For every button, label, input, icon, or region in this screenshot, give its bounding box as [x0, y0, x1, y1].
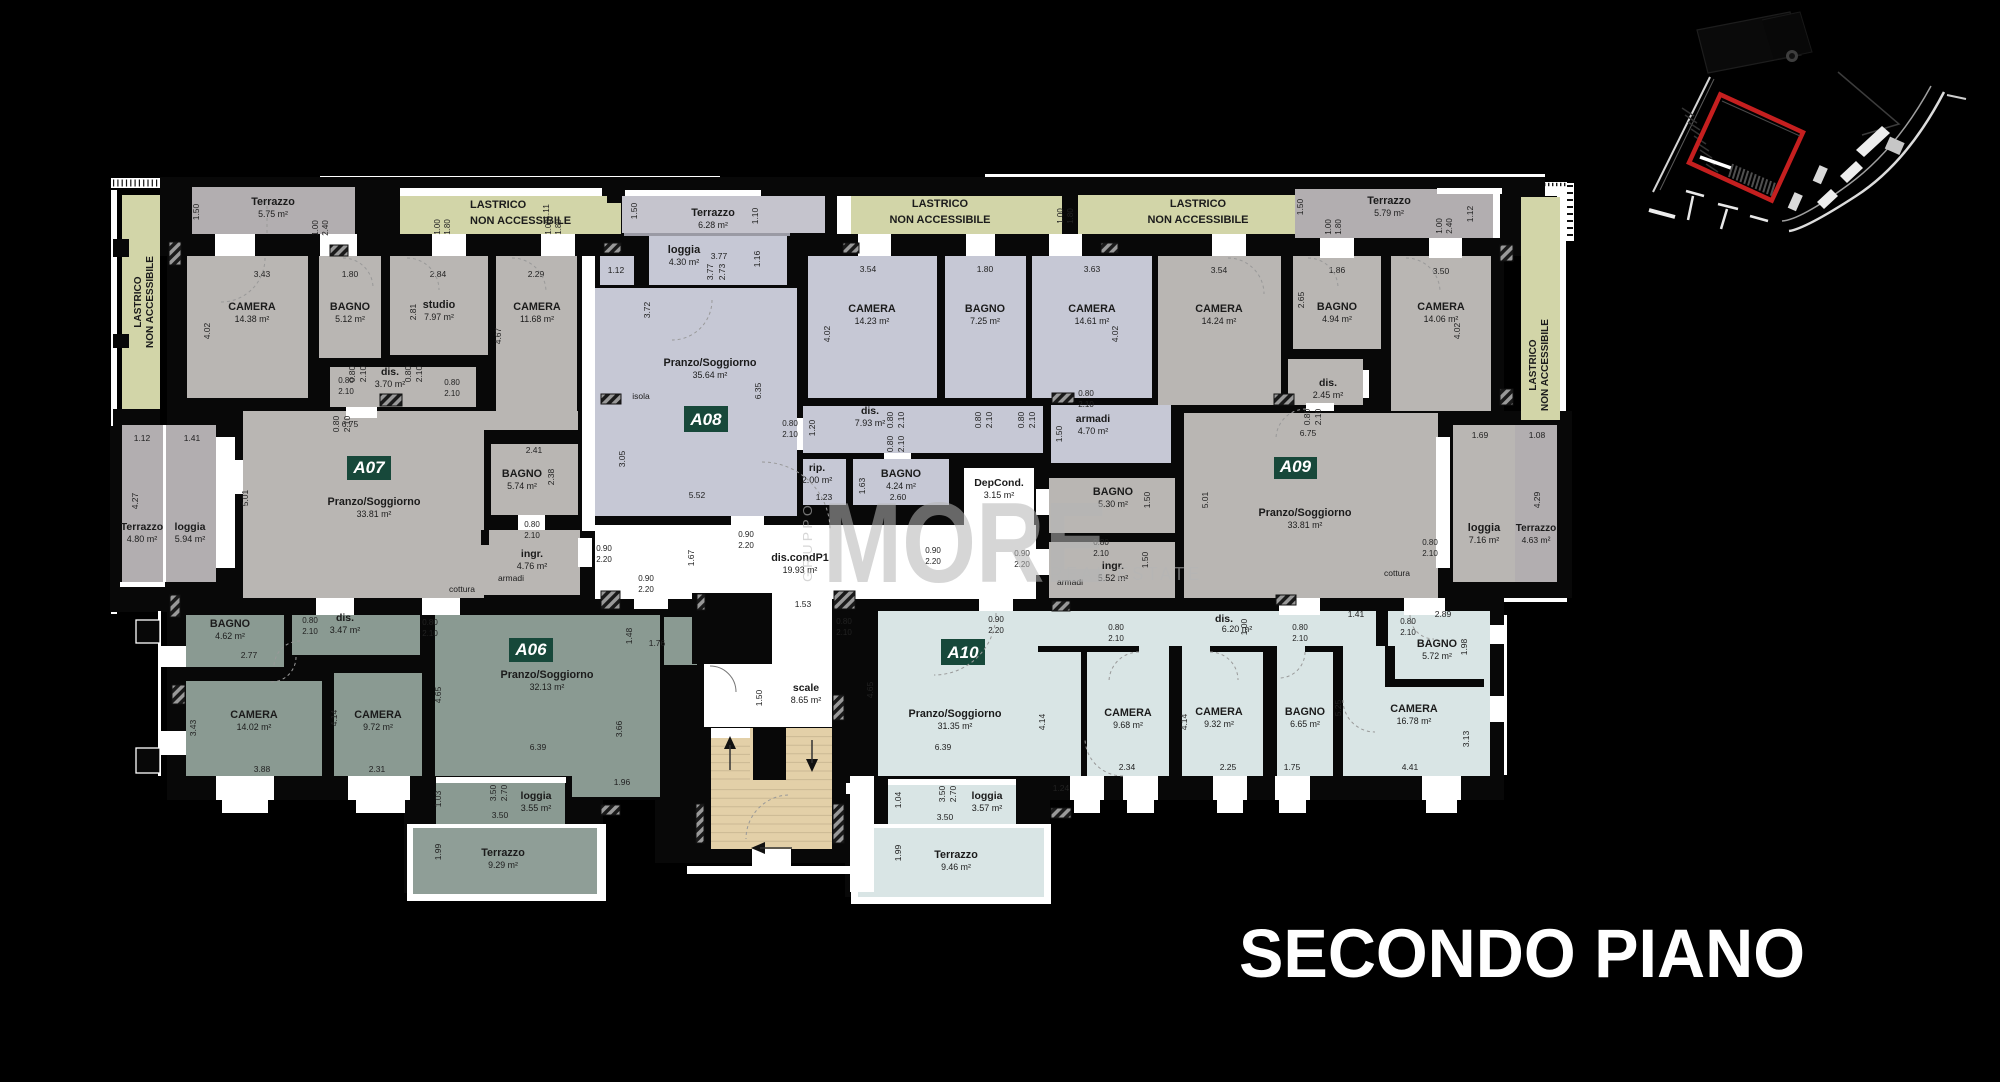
svg-text:3.50: 3.50 — [488, 784, 498, 801]
svg-text:3.72: 3.72 — [642, 301, 652, 318]
svg-text:4.02: 4.02 — [1452, 322, 1462, 339]
svg-text:Pranzo/Soggiorno: Pranzo/Soggiorno — [909, 708, 1002, 720]
svg-text:loggia: loggia — [1468, 522, 1501, 534]
svg-text:1.11: 1.11 — [541, 204, 551, 220]
svg-text:8.65 m²: 8.65 m² — [791, 695, 822, 705]
svg-text:2.10: 2.10 — [358, 365, 368, 382]
svg-text:BAGNO: BAGNO — [330, 301, 370, 313]
svg-text:CAMERA: CAMERA — [1068, 303, 1116, 315]
svg-text:0.80: 0.80 — [1302, 408, 1312, 425]
svg-text:1.41: 1.41 — [1348, 609, 1365, 619]
svg-text:4.62 m²: 4.62 m² — [215, 631, 245, 641]
svg-text:CAMERA: CAMERA — [848, 303, 896, 315]
svg-text:CAMERA: CAMERA — [1417, 301, 1465, 313]
svg-text:14.24 m²: 14.24 m² — [1202, 316, 1237, 326]
svg-text:7.16 m²: 7.16 m² — [1469, 535, 1500, 545]
svg-text:5.52: 5.52 — [689, 490, 706, 500]
svg-text:1.99: 1.99 — [433, 843, 443, 860]
svg-text:3.43: 3.43 — [188, 719, 198, 736]
svg-text:armadi: armadi — [498, 573, 524, 583]
svg-text:1.16: 1.16 — [752, 250, 762, 267]
svg-text:1.80: 1.80 — [554, 219, 563, 235]
svg-text:3.50: 3.50 — [492, 810, 509, 820]
svg-text:loggia: loggia — [668, 244, 701, 256]
svg-text:BAGNO: BAGNO — [502, 468, 542, 480]
svg-text:1.24: 1.24 — [1053, 783, 1070, 793]
svg-text:LASTRICO: LASTRICO — [912, 198, 969, 210]
svg-text:2.10: 2.10 — [444, 389, 460, 398]
svg-text:2.29: 2.29 — [528, 269, 545, 279]
svg-text:0.80: 0.80 — [302, 616, 318, 625]
svg-text:LASTRICO: LASTRICO — [1528, 339, 1539, 390]
svg-text:2.10: 2.10 — [1292, 634, 1308, 643]
svg-text:0.90: 0.90 — [596, 544, 612, 553]
svg-text:2.10: 2.10 — [1078, 400, 1094, 409]
svg-text:5.25: 5.25 — [1333, 699, 1343, 716]
svg-text:1.69: 1.69 — [1472, 430, 1489, 440]
svg-text:6.39: 6.39 — [530, 742, 547, 752]
svg-text:4.14: 4.14 — [1037, 713, 1047, 730]
svg-text:1.99: 1.99 — [893, 844, 903, 861]
svg-text:2.10: 2.10 — [1422, 549, 1438, 558]
svg-text:0.80: 0.80 — [1108, 623, 1124, 632]
svg-text:5.79 m²: 5.79 m² — [1374, 208, 1404, 218]
svg-text:1.12: 1.12 — [1465, 205, 1475, 222]
svg-text:A06: A06 — [514, 640, 547, 659]
svg-text:1.53: 1.53 — [795, 599, 812, 609]
svg-text:1.00: 1.00 — [433, 219, 442, 235]
svg-text:SECONDO PIANO: SECONDO PIANO — [1239, 915, 1805, 992]
svg-text:CAMERA: CAMERA — [354, 709, 402, 721]
svg-text:0.90: 0.90 — [638, 574, 654, 583]
svg-text:BAGNO: BAGNO — [965, 303, 1005, 315]
svg-text:CAMERA: CAMERA — [230, 709, 278, 721]
svg-text:1.80: 1.80 — [977, 264, 994, 274]
svg-text:cottura: cottura — [449, 584, 475, 594]
svg-text:LASTRICO: LASTRICO — [470, 199, 527, 211]
svg-text:0.90: 0.90 — [988, 615, 1004, 624]
svg-text:3.55 m²: 3.55 m² — [521, 803, 552, 813]
svg-text:0.80: 0.80 — [1078, 389, 1094, 398]
svg-text:2.10: 2.10 — [414, 365, 424, 382]
svg-text:6.65 m²: 6.65 m² — [1290, 719, 1320, 729]
svg-text:6.39: 6.39 — [935, 742, 952, 752]
svg-text:2.41: 2.41 — [526, 445, 543, 455]
svg-text:1.12: 1.12 — [608, 265, 625, 275]
svg-text:2.10: 2.10 — [342, 415, 352, 432]
svg-text:6.28 m²: 6.28 m² — [698, 220, 728, 230]
svg-text:Pranzo/Soggiorno: Pranzo/Soggiorno — [1259, 507, 1352, 519]
svg-text:3.54: 3.54 — [860, 264, 877, 274]
svg-text:2.45 m²: 2.45 m² — [1313, 390, 1344, 400]
svg-text:cottura: cottura — [1384, 568, 1410, 578]
svg-text:1.00: 1.00 — [1056, 208, 1065, 224]
svg-text:1.76: 1.76 — [649, 638, 666, 648]
svg-text:LASTRICO: LASTRICO — [133, 276, 144, 327]
svg-text:2.40: 2.40 — [321, 220, 330, 236]
svg-text:14.02 m²: 14.02 m² — [237, 722, 272, 732]
svg-text:0.80: 0.80 — [885, 435, 895, 452]
svg-text:NON ACCESSIBILE: NON ACCESSIBILE — [145, 256, 156, 348]
svg-text:studio: studio — [423, 299, 456, 311]
svg-text:14.23 m²: 14.23 m² — [855, 316, 890, 326]
svg-text:0.80: 0.80 — [1016, 411, 1026, 428]
svg-text:CAMERA: CAMERA — [1104, 707, 1152, 719]
svg-text:REAL ESTATE: REAL ESTATE — [1050, 564, 1203, 584]
svg-text:ingr.: ingr. — [521, 548, 543, 560]
svg-text:3.88: 3.88 — [254, 764, 271, 774]
svg-text:1.04: 1.04 — [893, 791, 903, 808]
svg-text:NON ACCESSIBILE: NON ACCESSIBILE — [889, 214, 990, 226]
svg-text:5.12 m²: 5.12 m² — [335, 314, 365, 324]
svg-text:1.80: 1.80 — [443, 219, 452, 235]
svg-text:LASTRICO: LASTRICO — [1170, 198, 1227, 210]
svg-text:1.08: 1.08 — [1529, 430, 1546, 440]
svg-text:CAMERA: CAMERA — [1195, 303, 1243, 315]
svg-text:4.27: 4.27 — [130, 492, 140, 509]
svg-text:11.68 m²: 11.68 m² — [520, 314, 554, 324]
svg-text:1.10: 1.10 — [750, 207, 760, 224]
svg-text:3.66: 3.66 — [614, 720, 624, 737]
svg-text:2.10: 2.10 — [782, 430, 798, 439]
svg-text:4.80 m²: 4.80 m² — [127, 534, 158, 544]
svg-text:4.70 m²: 4.70 m² — [1078, 426, 1109, 436]
svg-text:2.31: 2.31 — [369, 764, 386, 774]
svg-text:BAGNO: BAGNO — [210, 618, 250, 630]
svg-text:2.20: 2.20 — [596, 555, 612, 564]
svg-text:0.80: 0.80 — [444, 378, 460, 387]
svg-text:5.01: 5.01 — [1200, 491, 1210, 508]
svg-text:rip.: rip. — [809, 462, 825, 474]
svg-text:4.30 m²: 4.30 m² — [669, 257, 700, 267]
svg-text:9.32 m²: 9.32 m² — [1204, 719, 1234, 729]
svg-text:1.80: 1.80 — [1334, 219, 1343, 235]
svg-text:5.75 m²: 5.75 m² — [258, 209, 288, 219]
svg-text:dis.: dis. — [861, 405, 879, 417]
svg-text:35.64 m²: 35.64 m² — [693, 370, 728, 380]
svg-text:4.29: 4.29 — [1532, 491, 1542, 508]
svg-text:1.50: 1.50 — [191, 203, 201, 220]
svg-text:2.10: 2.10 — [1400, 628, 1416, 637]
svg-text:2.10: 2.10 — [338, 387, 354, 396]
svg-text:0.80: 0.80 — [422, 618, 438, 627]
svg-text:1.20: 1.20 — [807, 419, 817, 436]
svg-text:1.00: 1.00 — [311, 220, 320, 236]
svg-text:1.50: 1.50 — [754, 689, 764, 706]
svg-text:4.94 m²: 4.94 m² — [1322, 314, 1352, 324]
svg-text:dis.: dis. — [381, 366, 399, 378]
svg-text:Pranzo/Soggiorno: Pranzo/Soggiorno — [501, 669, 594, 681]
svg-text:5.72 m²: 5.72 m² — [1422, 651, 1452, 661]
svg-text:scale: scale — [793, 682, 819, 694]
svg-text:3.54: 3.54 — [1211, 265, 1228, 275]
svg-text:MORE: MORE — [823, 480, 1108, 607]
svg-text:33.81 m²: 33.81 m² — [1288, 520, 1323, 530]
svg-text:CAMERA: CAMERA — [1390, 703, 1438, 715]
svg-text:4.02: 4.02 — [202, 322, 212, 339]
svg-text:2.25: 2.25 — [1220, 762, 1237, 772]
svg-text:0.80: 0.80 — [331, 415, 341, 432]
svg-text:7.97 m²: 7.97 m² — [424, 312, 454, 322]
svg-text:2.10: 2.10 — [1027, 411, 1037, 428]
svg-text:0.80: 0.80 — [973, 411, 983, 428]
svg-text:1.96: 1.96 — [614, 777, 631, 787]
svg-text:4.67: 4.67 — [493, 327, 503, 344]
svg-text:2.89: 2.89 — [1435, 609, 1452, 619]
svg-text:1.00: 1.00 — [1324, 219, 1333, 235]
svg-text:3.57 m²: 3.57 m² — [972, 803, 1003, 813]
svg-text:Terrazzo: Terrazzo — [251, 196, 295, 208]
svg-text:Terrazzo: Terrazzo — [481, 847, 525, 859]
svg-text:1.67: 1.67 — [686, 549, 696, 566]
svg-text:0.80: 0.80 — [885, 411, 895, 428]
svg-text:2.10: 2.10 — [524, 531, 540, 540]
svg-text:2.81: 2.81 — [408, 303, 418, 320]
svg-text:6.35: 6.35 — [753, 382, 763, 399]
svg-text:2.70: 2.70 — [948, 785, 958, 802]
svg-text:1.00: 1.00 — [1435, 218, 1444, 234]
svg-text:A09: A09 — [1279, 457, 1312, 476]
svg-text:16.78 m²: 16.78 m² — [1397, 716, 1432, 726]
svg-text:2.10: 2.10 — [1108, 634, 1124, 643]
svg-text:33.81 m²: 33.81 m² — [357, 509, 392, 519]
svg-text:loggia: loggia — [521, 790, 552, 802]
svg-text:4.41: 4.41 — [1402, 762, 1419, 772]
svg-text:2.10: 2.10 — [836, 628, 852, 637]
svg-text:3.77: 3.77 — [705, 263, 715, 280]
svg-text:Terrazzo: Terrazzo — [1516, 523, 1556, 534]
svg-text:0.90: 0.90 — [738, 530, 754, 539]
svg-text:loggia: loggia — [175, 521, 206, 533]
svg-text:1.50: 1.50 — [629, 202, 639, 219]
svg-text:3.77: 3.77 — [711, 251, 728, 261]
svg-text:3.13: 3.13 — [1461, 730, 1471, 747]
svg-text:3.50: 3.50 — [937, 812, 954, 822]
svg-text:1.50: 1.50 — [1054, 425, 1064, 442]
svg-text:1.12: 1.12 — [134, 433, 151, 443]
svg-text:2.70: 2.70 — [499, 784, 509, 801]
svg-text:1.41: 1.41 — [184, 433, 201, 443]
svg-text:14.06 m²: 14.06 m² — [1424, 314, 1459, 324]
svg-text:9.29 m²: 9.29 m² — [488, 860, 518, 870]
svg-text:6.75: 6.75 — [1300, 428, 1317, 438]
svg-text:0.80: 0.80 — [338, 376, 354, 385]
svg-text:BAGNO: BAGNO — [1417, 638, 1457, 650]
svg-text:0.80: 0.80 — [782, 419, 798, 428]
svg-text:3.63: 3.63 — [1084, 264, 1101, 274]
svg-text:2.10: 2.10 — [896, 435, 906, 452]
svg-text:1.98: 1.98 — [1459, 638, 1469, 655]
svg-text:CAMERA: CAMERA — [228, 301, 276, 313]
svg-text:3.70 m²: 3.70 m² — [375, 379, 406, 389]
svg-text:5.74 m²: 5.74 m² — [507, 481, 537, 491]
svg-text:Terrazzo: Terrazzo — [121, 521, 163, 533]
svg-text:Pranzo/Soggiorno: Pranzo/Soggiorno — [664, 357, 757, 369]
svg-text:1.48: 1.48 — [624, 627, 634, 644]
svg-text:14.61 m²: 14.61 m² — [1075, 316, 1110, 326]
svg-text:7.25 m²: 7.25 m² — [970, 316, 1000, 326]
svg-text:dis.: dis. — [336, 612, 354, 624]
svg-text:2.73: 2.73 — [717, 263, 727, 280]
svg-text:14.38 m²: 14.38 m² — [235, 314, 270, 324]
svg-text:4.14: 4.14 — [1179, 713, 1189, 730]
svg-text:armadi: armadi — [1076, 413, 1111, 425]
svg-text:GRUPPO: GRUPPO — [800, 502, 815, 582]
svg-text:2.10: 2.10 — [1313, 408, 1323, 425]
svg-text:2.34: 2.34 — [1119, 762, 1136, 772]
svg-text:2.84: 2.84 — [430, 269, 447, 279]
svg-text:3.50: 3.50 — [937, 785, 947, 802]
svg-text:2.20: 2.20 — [988, 626, 1004, 635]
svg-text:2.10: 2.10 — [984, 411, 994, 428]
svg-text:2.38: 2.38 — [546, 468, 556, 485]
svg-text:7.93 m²: 7.93 m² — [855, 418, 886, 428]
svg-text:BAGNO: BAGNO — [1285, 706, 1325, 718]
svg-text:A08: A08 — [689, 410, 722, 429]
svg-text:0.80: 0.80 — [524, 520, 540, 529]
svg-text:2.77: 2.77 — [241, 650, 258, 660]
svg-text:CAMERA: CAMERA — [1195, 706, 1243, 718]
svg-text:dis.: dis. — [1319, 377, 1337, 389]
svg-text:1.50: 1.50 — [1142, 491, 1152, 508]
svg-text:2.65: 2.65 — [1296, 291, 1306, 308]
svg-text:4.76 m²: 4.76 m² — [517, 561, 548, 571]
svg-text:0.80: 0.80 — [1292, 623, 1308, 632]
svg-text:0.80: 0.80 — [1400, 617, 1416, 626]
svg-text:4.65: 4.65 — [433, 686, 443, 703]
svg-text:1.80: 1.80 — [342, 269, 359, 279]
svg-text:BAGNO: BAGNO — [881, 468, 921, 480]
svg-text:5.01: 5.01 — [240, 489, 250, 506]
svg-text:4.02: 4.02 — [822, 325, 832, 342]
svg-text:2.20: 2.20 — [638, 585, 654, 594]
svg-text:32.13 m²: 32.13 m² — [530, 682, 565, 692]
svg-text:isola: isola — [632, 391, 650, 401]
svg-text:A07: A07 — [352, 458, 386, 477]
svg-text:NON ACCESSIBILE: NON ACCESSIBILE — [1540, 319, 1551, 411]
svg-text:9.68 m²: 9.68 m² — [1113, 720, 1143, 730]
svg-text:1.00: 1.00 — [1239, 618, 1249, 635]
svg-text:4.02: 4.02 — [1110, 325, 1120, 342]
svg-text:3.05: 3.05 — [617, 450, 627, 467]
svg-text:2.10: 2.10 — [422, 629, 438, 638]
svg-text:3.47 m²: 3.47 m² — [330, 625, 361, 635]
svg-text:A10: A10 — [946, 643, 979, 662]
svg-text:loggia: loggia — [972, 790, 1003, 802]
svg-text:2.10: 2.10 — [302, 627, 318, 636]
svg-text:9.72 m²: 9.72 m² — [363, 722, 393, 732]
svg-text:1.80: 1.80 — [1066, 208, 1075, 224]
svg-text:1.03: 1.03 — [433, 790, 443, 807]
svg-text:1.00: 1.00 — [544, 219, 553, 235]
svg-text:2.40: 2.40 — [1445, 218, 1454, 234]
svg-text:3.43: 3.43 — [254, 269, 271, 279]
svg-text:31.35 m²: 31.35 m² — [938, 721, 973, 731]
svg-text:2.20: 2.20 — [738, 541, 754, 550]
svg-text:0.80: 0.80 — [403, 365, 413, 382]
svg-text:0.80: 0.80 — [1422, 538, 1438, 547]
svg-text:4.14: 4.14 — [329, 709, 339, 726]
svg-text:Terrazzo: Terrazzo — [1367, 195, 1411, 207]
svg-text:Pranzo/Soggiorno: Pranzo/Soggiorno — [328, 496, 421, 508]
svg-text:0.80: 0.80 — [836, 617, 852, 626]
svg-text:4.63 m²: 4.63 m² — [1522, 535, 1551, 545]
svg-text:Terrazzo: Terrazzo — [934, 849, 978, 861]
svg-text:BAGNO: BAGNO — [1317, 301, 1357, 313]
svg-text:CAMERA: CAMERA — [513, 301, 561, 313]
svg-text:2.10: 2.10 — [896, 411, 906, 428]
svg-text:1.50: 1.50 — [1295, 198, 1305, 215]
svg-text:3.50: 3.50 — [1433, 266, 1450, 276]
svg-text:1.75: 1.75 — [1284, 762, 1301, 772]
svg-text:4.65: 4.65 — [865, 681, 875, 698]
svg-text:NON ACCESSIBILE: NON ACCESSIBILE — [1147, 214, 1248, 226]
svg-text:1.86: 1.86 — [1329, 265, 1346, 275]
svg-text:Terrazzo: Terrazzo — [691, 207, 735, 219]
svg-text:9.46 m²: 9.46 m² — [941, 862, 971, 872]
svg-text:5.94 m²: 5.94 m² — [175, 534, 206, 544]
